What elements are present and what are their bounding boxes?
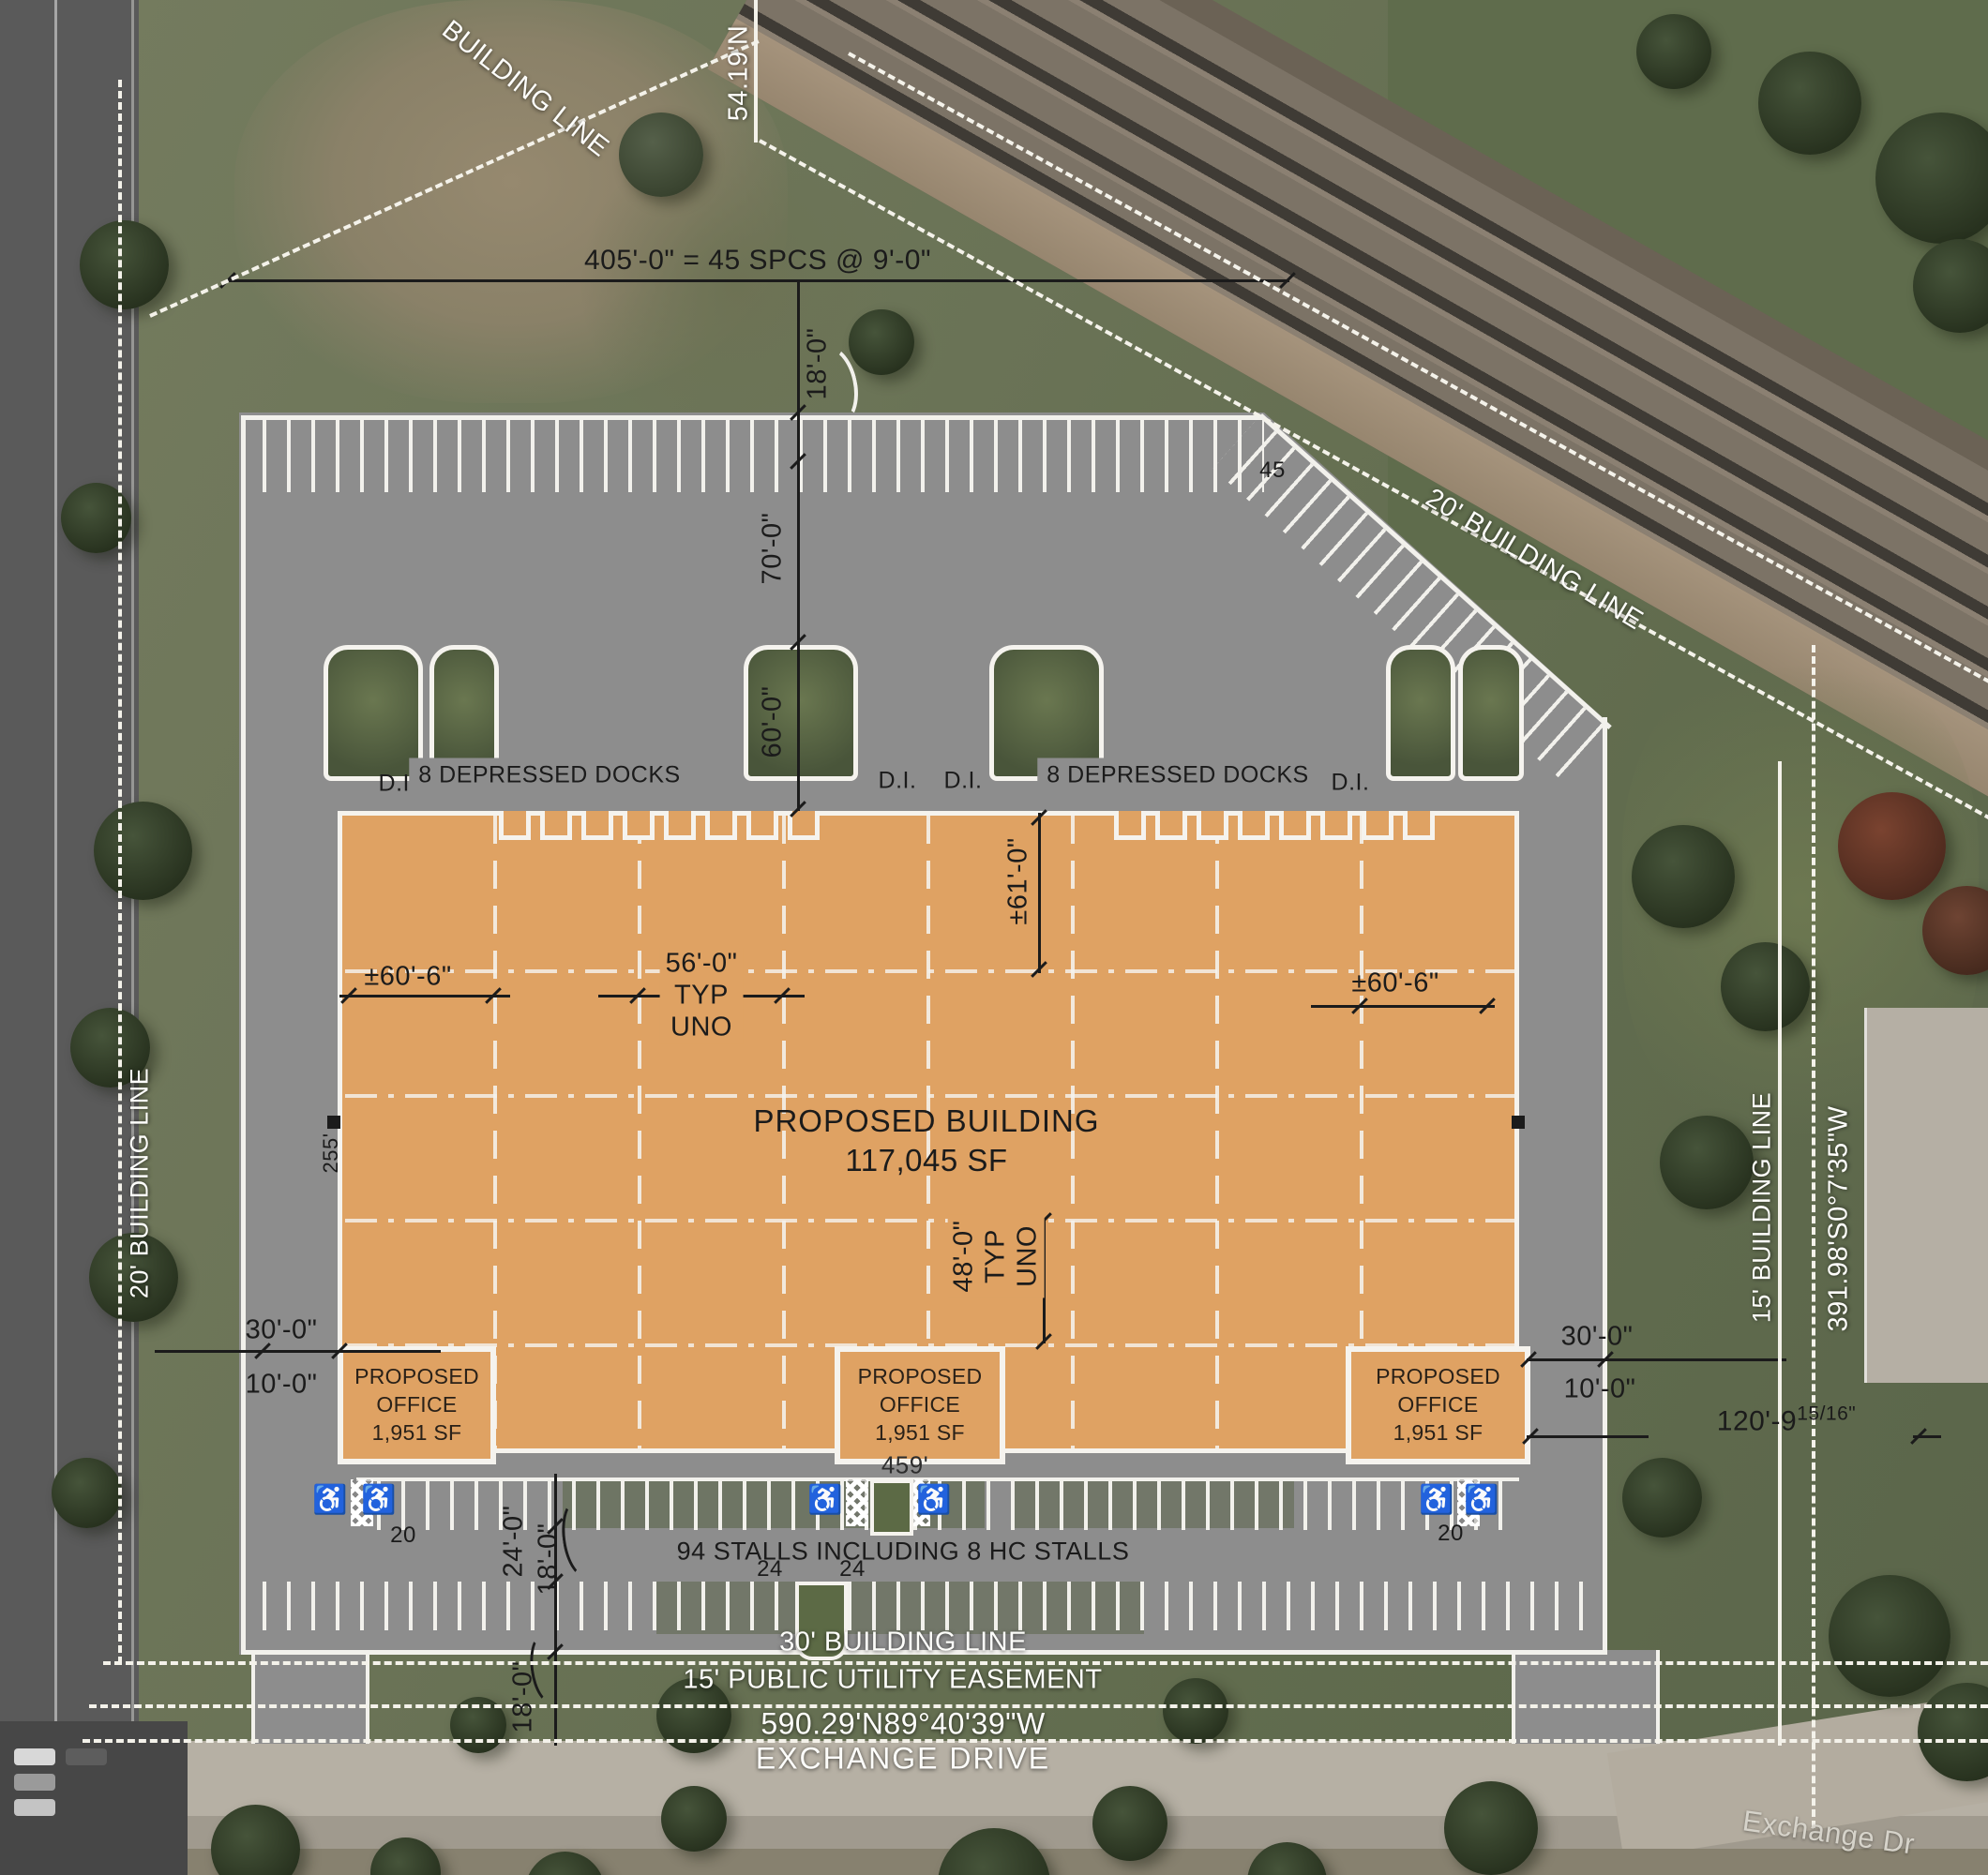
dim-60-6-east: ±60'-6" xyxy=(1351,968,1438,999)
stall-count-20-west: 20 xyxy=(390,1522,416,1549)
tree xyxy=(80,220,169,309)
stall-count-20-east: 20 xyxy=(1438,1521,1464,1547)
dock-door xyxy=(746,811,778,840)
drain-inlet-label: D.I. xyxy=(944,768,983,795)
dim-18-row2: 18'-0" xyxy=(508,1661,539,1733)
curb-left xyxy=(241,415,246,1655)
hc-stall-icon: ♿ xyxy=(1419,1484,1454,1517)
dock-door xyxy=(499,811,531,840)
office-name: PROPOSED OFFICE xyxy=(1376,1364,1500,1417)
landscape-island xyxy=(1458,645,1524,781)
depressed-docks-west: 8 DEPRESSED DOCKS xyxy=(409,758,689,793)
tree xyxy=(661,1786,727,1852)
tree xyxy=(1660,1116,1754,1209)
tree xyxy=(1758,52,1861,155)
south-building-line-label: 30' BUILDING LINE xyxy=(779,1627,1027,1658)
dock-door xyxy=(1155,811,1187,840)
dim-line-top-parking xyxy=(228,279,1289,282)
hc-stall-icon: ♿ xyxy=(1464,1484,1499,1517)
dim-24-aisle: 24'-0" xyxy=(499,1506,530,1578)
hc-stall-icon: ♿ xyxy=(916,1484,952,1517)
tree xyxy=(1721,942,1810,1031)
wall-marker xyxy=(327,1116,340,1129)
dim-30-west: 30'-0" xyxy=(246,1315,318,1346)
uno-label: UNO xyxy=(670,1012,732,1042)
parked-car xyxy=(14,1748,55,1765)
dock-door xyxy=(664,811,696,840)
hc-stall-icon: ♿ xyxy=(312,1484,348,1517)
drain-inlet-label: D.I. xyxy=(879,768,917,795)
dock-door xyxy=(540,811,572,840)
hc-access-aisle xyxy=(846,1479,868,1526)
dim-10-east: 10'-0" xyxy=(1564,1374,1636,1405)
dim-18-north: 18'-0" xyxy=(803,328,834,400)
west-building-line xyxy=(118,80,122,1664)
tree xyxy=(1092,1786,1167,1861)
corner-parking-lot xyxy=(0,1721,188,1875)
site-plan: PROPOSED OFFICE 1,951 SF PROPOSED OFFICE… xyxy=(0,0,1988,1875)
utility-easement-label: 15' PUBLIC UTILITY EASEMENT xyxy=(683,1665,1102,1696)
building-name: PROPOSED BUILDING xyxy=(753,1103,1099,1139)
dock-door xyxy=(1320,811,1352,840)
east-bearing-label: 391.98'S0°7'35"W xyxy=(1824,1106,1855,1332)
dim-120-main: 120'-9 xyxy=(1717,1406,1797,1437)
north-bearing-label: 54.19'N xyxy=(724,25,755,122)
south-bearing-label: 590.29'N89°40'39"W xyxy=(761,1707,1045,1742)
tree xyxy=(1622,1458,1702,1537)
tree xyxy=(1163,1678,1228,1744)
north-parking-row xyxy=(242,415,1264,492)
tree xyxy=(849,309,914,375)
dock-door xyxy=(1403,811,1435,840)
tree xyxy=(619,112,703,197)
building-width-459: 459' xyxy=(881,1451,928,1480)
parked-car xyxy=(14,1799,55,1816)
dim-line-60-6-west xyxy=(339,995,510,997)
dim-line-east-strip xyxy=(1527,1358,1786,1361)
hc-stall-icon: ♿ xyxy=(807,1484,843,1517)
dock-door xyxy=(623,811,655,840)
dock-door xyxy=(705,811,737,840)
tree xyxy=(94,802,192,900)
dim-56: 56'-0" xyxy=(666,949,738,979)
dock-door xyxy=(1362,811,1393,840)
stall-count-45: 45 xyxy=(1259,457,1286,484)
hc-stall-icon: ♿ xyxy=(361,1484,397,1517)
office-area: 1,951 SF xyxy=(372,1420,462,1445)
dim-61: ±61'-0" xyxy=(1003,837,1034,924)
stall-count-note: 94 STALLS INCLUDING 8 HC STALLS xyxy=(677,1537,1130,1567)
office-name: PROPOSED OFFICE xyxy=(858,1364,983,1417)
tree xyxy=(52,1458,122,1528)
left-road-curb xyxy=(54,0,57,1875)
tree-red xyxy=(1838,792,1946,900)
column-grid-line xyxy=(638,816,641,1448)
east-building-line-label: 15' BUILDING LINE xyxy=(1748,1092,1777,1323)
wall-marker xyxy=(1512,1116,1525,1129)
dim-top-parking-spaces: 405'-0" = 45 SPCS @ 9'-0" xyxy=(584,245,931,277)
right-parking-lot xyxy=(1864,1008,1988,1383)
east-property-line xyxy=(1812,645,1815,1828)
office-area: 1,951 SF xyxy=(1393,1420,1483,1445)
typ-label: TYP xyxy=(981,1229,1011,1283)
column-grid-line xyxy=(345,969,1515,973)
dim-line-west-strip xyxy=(155,1350,441,1353)
dim-30-east: 30'-0" xyxy=(1561,1322,1634,1353)
south-parking-row-2 xyxy=(242,1582,1597,1630)
west-building-line-label: 20' BUILDING LINE xyxy=(126,1068,155,1298)
typ-label: TYP xyxy=(674,981,729,1011)
column-grid-line xyxy=(345,1094,1515,1098)
dock-door xyxy=(1114,811,1146,840)
entry-island xyxy=(870,1479,913,1536)
dim-48-typ-uno: 48'-0" TYP UNO xyxy=(948,1215,1045,1298)
stall-count-24-east: 24 xyxy=(839,1556,866,1582)
north-property-line xyxy=(754,0,758,142)
street-name-label: EXCHANGE DRIVE xyxy=(756,1742,1050,1777)
dim-56-typ-uno: 56'-0" TYP UNO xyxy=(660,948,744,1044)
dim-60: 60'-0" xyxy=(758,686,789,758)
dim-70: 70'-0" xyxy=(758,513,789,585)
stall-count-24-west: 24 xyxy=(757,1556,783,1582)
uno-label: UNO xyxy=(1013,1225,1043,1287)
dock-door xyxy=(581,811,613,840)
dim-48: 48'-0" xyxy=(949,1221,979,1293)
dim-line-60-6-east xyxy=(1311,1005,1495,1008)
column-grid-line xyxy=(345,1219,1515,1222)
office-name: PROPOSED OFFICE xyxy=(354,1364,479,1417)
office-center: PROPOSED OFFICE 1,951 SF xyxy=(835,1346,1005,1464)
tree xyxy=(1636,14,1711,89)
east-building-line-15ft xyxy=(1778,761,1782,1746)
office-east: PROPOSED OFFICE 1,951 SF xyxy=(1346,1346,1530,1464)
dim-line-120 xyxy=(1527,1435,1649,1438)
dim-60-6-west: ±60'-6" xyxy=(364,962,451,993)
parked-car xyxy=(66,1748,107,1765)
dim-18-row1: 18'-0" xyxy=(534,1523,565,1596)
dock-door xyxy=(1197,811,1228,840)
dock-door xyxy=(1238,811,1270,840)
dock-door xyxy=(1279,811,1311,840)
tree xyxy=(1632,825,1735,928)
parked-car xyxy=(14,1774,55,1791)
dim-10-west: 10'-0" xyxy=(246,1370,318,1401)
tree xyxy=(1829,1575,1950,1697)
dim-line-north-chain xyxy=(797,281,800,811)
curb-right xyxy=(1603,717,1607,1655)
building-depth-255: 255' xyxy=(319,1133,343,1174)
landscape-island xyxy=(324,645,423,781)
dim-line-61-bay xyxy=(1038,813,1041,973)
column-grid-line xyxy=(1215,816,1219,1448)
dim-120-9-15-16: 120'-915/16" xyxy=(1717,1403,1856,1438)
dim-120-fraction: 15/16" xyxy=(1797,1403,1856,1425)
office-west: PROPOSED OFFICE 1,951 SF xyxy=(338,1346,496,1464)
landscape-island xyxy=(1386,645,1455,781)
building-area: 117,045 SF xyxy=(845,1143,1007,1178)
office-area: 1,951 SF xyxy=(875,1420,965,1445)
tree xyxy=(1444,1781,1538,1875)
depressed-docks-east: 8 DEPRESSED DOCKS xyxy=(1037,758,1318,793)
drain-inlet-label: D.I. xyxy=(1332,770,1370,797)
